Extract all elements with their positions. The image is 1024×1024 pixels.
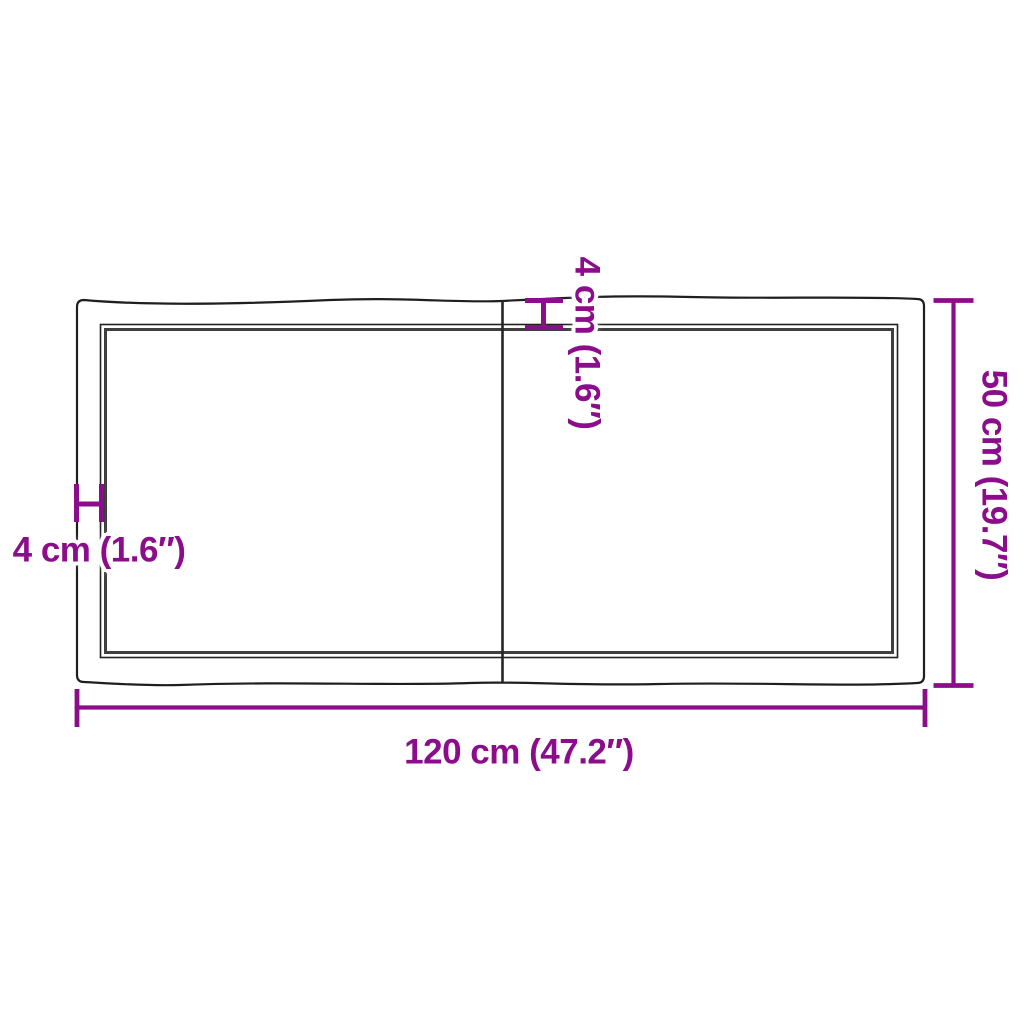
tabletop-outline — [77, 296, 924, 685]
depth-dimension — [934, 300, 974, 686]
depth-dimension-label: 50 cm (19.7″) — [977, 370, 1012, 581]
inner-edge-line-thin — [101, 325, 898, 658]
width-dimension — [77, 689, 925, 727]
left-edge-thickness-label: 4 cm (1.6″) — [13, 533, 186, 568]
dimension-diagram: 120 cm (47.2″) 50 cm (19.7″) 4 cm (1.6″)… — [0, 0, 1024, 1024]
left-edge-thickness-marker — [76, 484, 102, 522]
top-edge-thickness-label: 4 cm (1.6″) — [570, 257, 605, 430]
width-dimension-label: 120 cm (47.2″) — [404, 735, 634, 770]
diagram-canvas — [0, 0, 1024, 1024]
inner-edge-line-thick — [106, 330, 893, 653]
